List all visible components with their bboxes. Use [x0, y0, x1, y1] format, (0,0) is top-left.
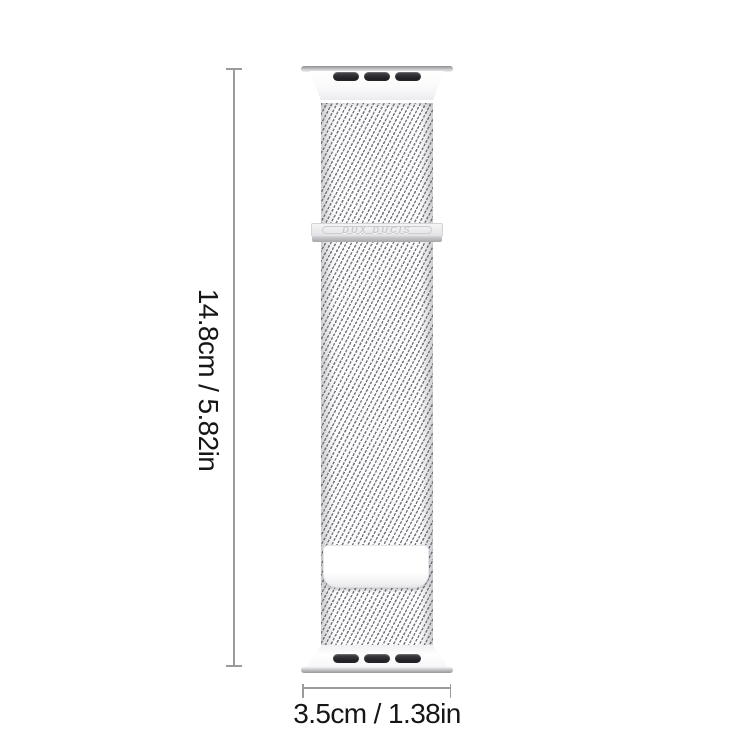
product-dimension-image: 14.8cm / 5.82in DUX DUCIS [0, 0, 750, 750]
height-dimension-line [233, 69, 235, 666]
bottom-lug-bar [301, 667, 453, 673]
width-dimension-label: 3.5cm / 1.38in [293, 700, 460, 728]
band-slot [333, 72, 359, 81]
width-dimension-tick-right [450, 684, 452, 698]
width-dimension-line [302, 687, 451, 689]
brand-label: DUX DUCIS [342, 226, 411, 235]
bottom-connector-slots [301, 654, 453, 663]
band-slot [364, 654, 390, 663]
brand-slider-clasp: DUX DUCIS [311, 223, 443, 242]
milanese-mesh-strap: DUX DUCIS [321, 103, 433, 645]
brand-plate: DUX DUCIS [322, 226, 432, 234]
top-connector-slots [301, 72, 453, 81]
brand-slider-face: DUX DUCIS [311, 223, 443, 237]
watch-band: DUX DUCIS [301, 66, 453, 673]
band-slot [364, 72, 390, 81]
brand-slider-lip [312, 237, 442, 242]
height-dimension-tick-bottom [226, 665, 242, 667]
height-dimension-label: 14.8cm / 5.82in [194, 289, 222, 471]
magnetic-clasp-plate [323, 545, 429, 588]
band-slot [395, 654, 421, 663]
band-slot [333, 654, 359, 663]
band-slot [395, 72, 421, 81]
